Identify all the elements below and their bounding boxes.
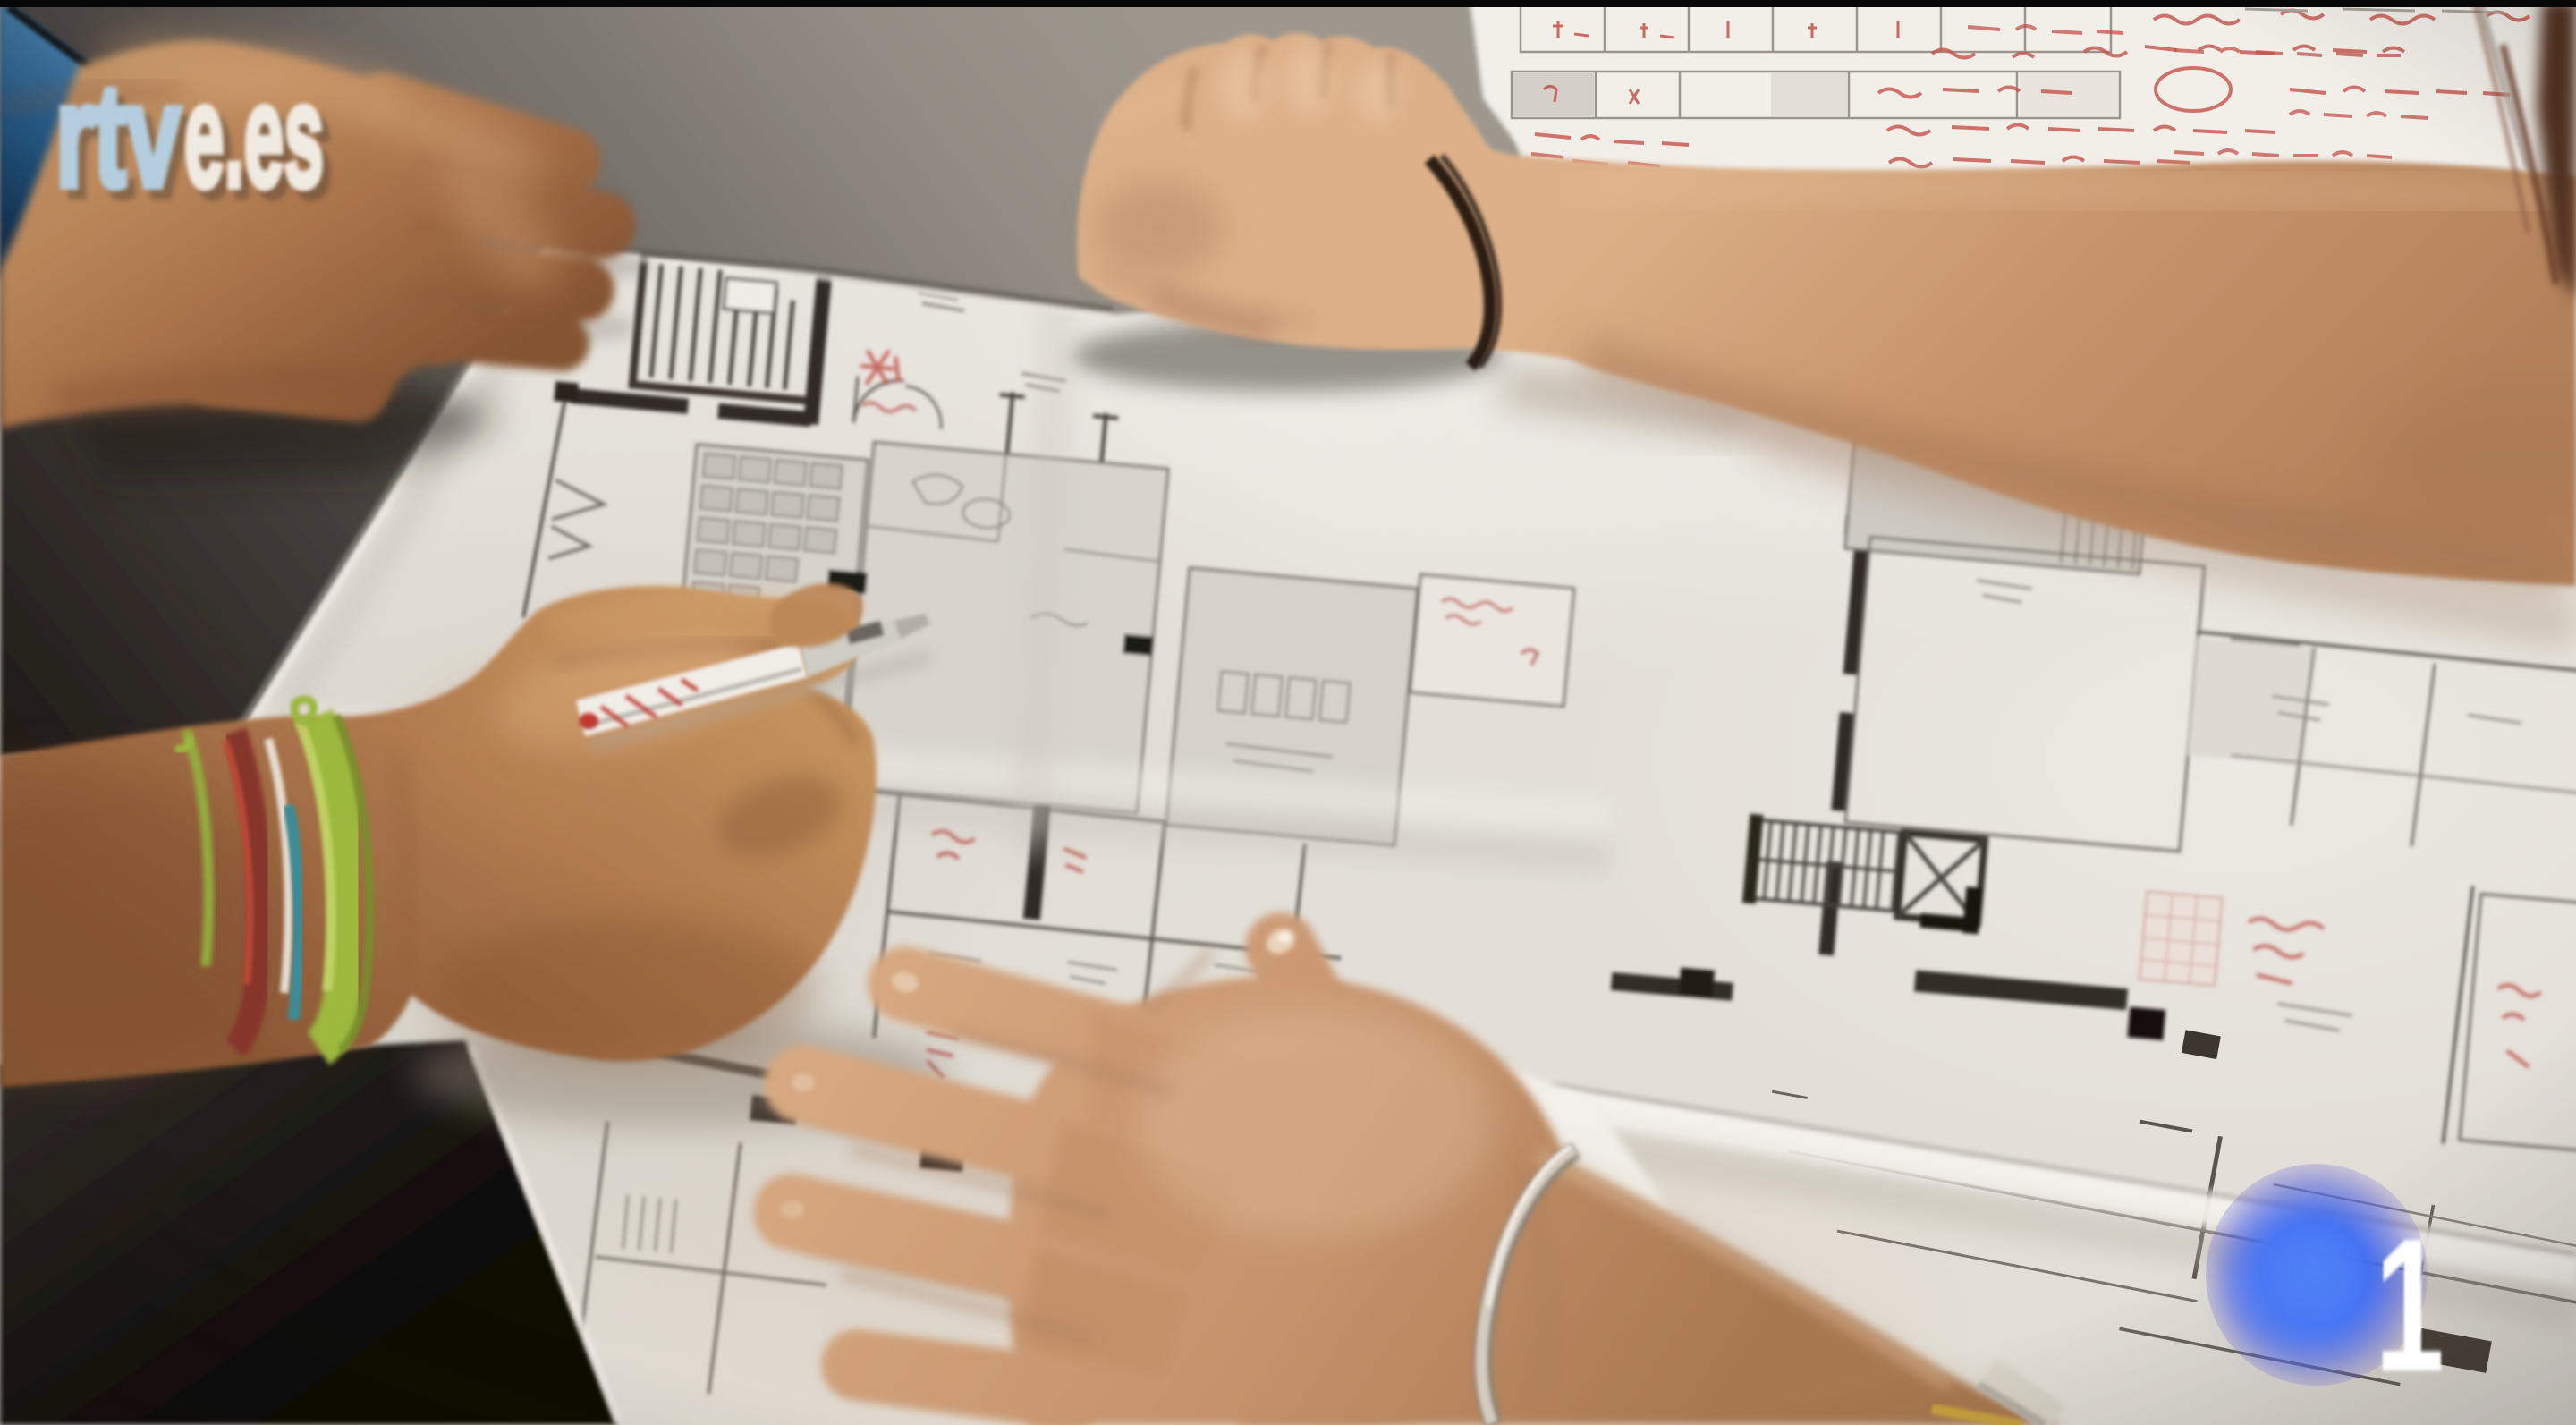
svg-text:rtv: rtv	[55, 54, 181, 217]
svg-text:1: 1	[2375, 1200, 2445, 1412]
svg-text:e.es: e.es	[184, 54, 324, 217]
